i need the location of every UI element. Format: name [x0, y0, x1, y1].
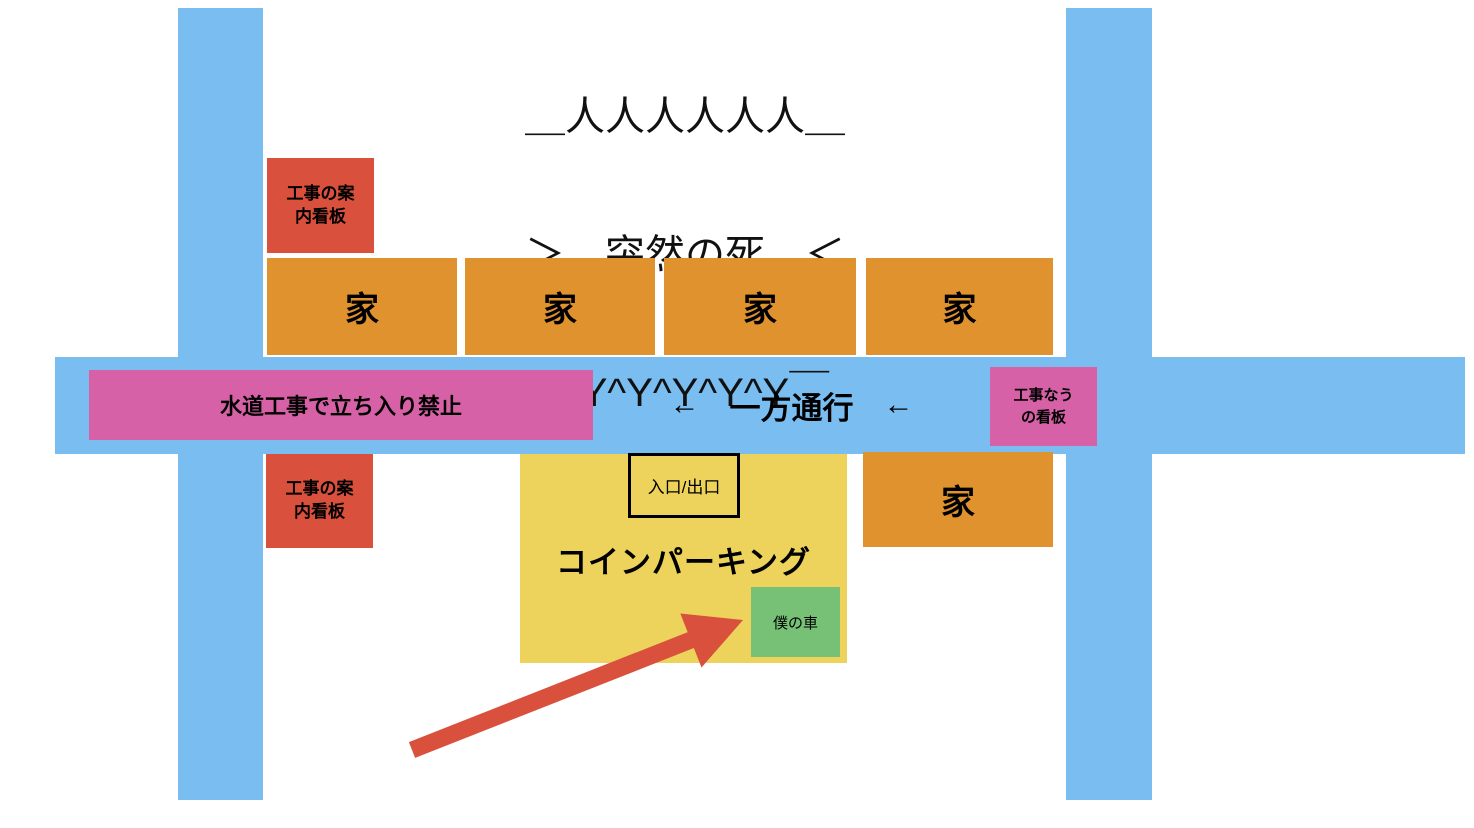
no-entry-sign: 水道工事で立ち入り禁止: [89, 370, 593, 440]
coin-parking-label: コインパーキング: [520, 537, 847, 582]
map-canvas: ＿人人人人人人＿ ＞ 突然の死 ＜ ￣Y^Y^Y^Y^Y￣ 工事の案内看板 家 …: [0, 0, 1474, 828]
house-3-label: 家: [743, 282, 777, 331]
construction-sign-top: 工事の案内看板: [267, 158, 374, 253]
construction-now-sign: 工事なうの看板: [990, 367, 1097, 446]
construction-sign-bottom-label: 工事の案内看板: [285, 478, 355, 524]
entrance-exit-label: 入口/出口: [648, 473, 721, 498]
construction-sign-bottom: 工事の案内看板: [266, 454, 373, 548]
house-south: 家: [863, 452, 1053, 547]
house-4: 家: [866, 258, 1053, 355]
my-car-box: 僕の車: [751, 587, 840, 657]
house-1: 家: [267, 258, 457, 355]
house-2-label: 家: [543, 282, 577, 331]
meme-banner-line-1: ＿人人人人人人＿: [495, 94, 875, 140]
arrow-west-icon-2: ←: [884, 388, 914, 422]
house-1-label: 家: [345, 282, 379, 331]
one-way-label: 一方通行: [730, 383, 854, 428]
house-4-label: 家: [943, 282, 977, 331]
arrow-west-icon-1: ←: [670, 388, 700, 422]
entrance-exit-box: 入口/出口: [628, 453, 740, 518]
one-way-zone: ← 一方通行 ←: [593, 370, 990, 440]
construction-sign-top-label: 工事の案内看板: [286, 183, 356, 229]
house-3: 家: [664, 258, 856, 355]
my-car-label: 僕の車: [773, 612, 818, 633]
house-2: 家: [465, 258, 655, 355]
no-entry-sign-label: 水道工事で立ち入り禁止: [220, 389, 462, 421]
house-south-label: 家: [941, 475, 975, 524]
construction-now-sign-label: 工事なうの看板: [1013, 385, 1075, 429]
